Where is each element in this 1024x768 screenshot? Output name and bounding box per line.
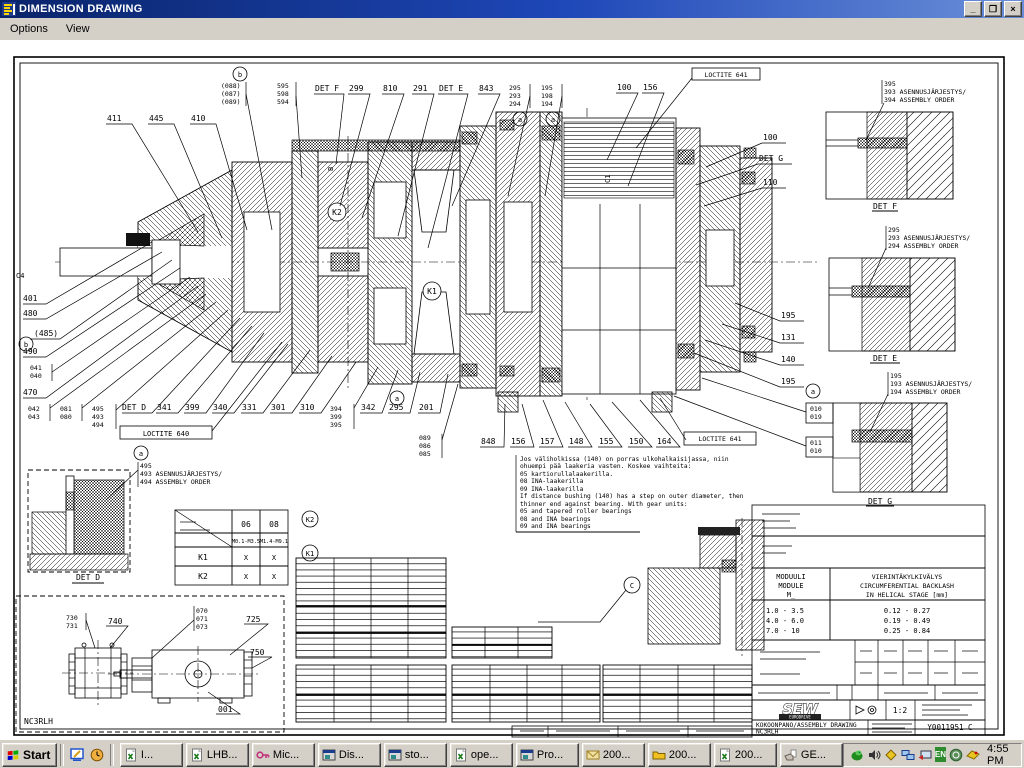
svg-text:157: 157 (540, 437, 555, 446)
svg-text:194 ASSEMBLY ORDER: 194 ASSEMBLY ORDER (890, 388, 961, 396)
svg-text:a: a (518, 116, 522, 124)
window-title: DIMENSION DRAWING (19, 3, 964, 15)
svg-text:201: 201 (419, 403, 434, 412)
svg-text:DET E: DET E (439, 84, 463, 93)
svg-text:198: 198 (541, 92, 553, 100)
svg-text:M_: M_ (787, 591, 796, 599)
svg-text:725: 725 (246, 615, 261, 624)
menu-view[interactable]: View (58, 21, 98, 37)
svg-text:010: 010 (810, 447, 822, 455)
svg-text:040: 040 (30, 372, 42, 380)
svg-text:293: 293 (509, 92, 521, 100)
svg-text:08: 08 (269, 520, 279, 529)
app-icon (2, 2, 16, 16)
svg-text:K1: K1 (306, 550, 314, 558)
svg-text:If distance bushing (140) has: If distance bushing (140) has a step on … (520, 493, 744, 500)
hand-icon (784, 748, 798, 762)
svg-text:291: 291 (413, 84, 428, 93)
svg-text:340: 340 (213, 403, 228, 412)
svg-text:100: 100 (763, 133, 778, 142)
svg-text:08 INA-laakerilla: 08 INA-laakerilla (520, 478, 584, 485)
svg-text:843: 843 (479, 84, 494, 93)
task-button[interactable]: sto... (384, 743, 447, 767)
system-tray: EN 4:55 PM (843, 743, 1022, 767)
svg-text:156: 156 (511, 437, 526, 446)
svg-text:195: 195 (541, 84, 553, 92)
svg-text:05 kartiorullalaakerilla.: 05 kartiorullalaakerilla. (520, 471, 613, 478)
svg-text:08 and INA bearings: 08 and INA bearings (520, 516, 591, 523)
minimize-button[interactable]: _ (964, 1, 982, 17)
menu-bar: Options View (0, 18, 1024, 40)
svg-text:295: 295 (888, 226, 900, 234)
svg-text:a: a (395, 395, 399, 403)
svg-text:393 ASENNUSJÄRJESTYS/: 393 ASENNUSJÄRJESTYS/ (884, 87, 966, 96)
svg-text:MODULE: MODULE (778, 582, 803, 590)
svg-text:495: 495 (140, 462, 152, 470)
svg-text:DET D: DET D (76, 573, 100, 582)
svg-text:495: 495 (92, 405, 104, 413)
remote-icon[interactable] (918, 748, 932, 762)
taskbar-divider (60, 744, 64, 766)
svg-text:C: C (630, 582, 634, 590)
task-button[interactable]: ope... (450, 743, 513, 767)
svg-text:06: 06 (241, 520, 251, 529)
svg-text:1.0 - 3.5: 1.0 - 3.5 (766, 607, 804, 615)
svg-text:7.0 - 10: 7.0 - 10 (766, 627, 800, 635)
svg-text:a: a (139, 450, 143, 458)
svg-text:0.25 - 0.84: 0.25 - 0.84 (884, 627, 930, 635)
svg-text:042: 042 (28, 405, 40, 413)
svg-text:150: 150 (629, 437, 644, 446)
svg-text:(087): (087) (221, 90, 241, 98)
mail-notify-icon[interactable] (966, 748, 980, 762)
excel-icon (190, 748, 204, 762)
svg-text:0.12 - 0.27: 0.12 - 0.27 (884, 607, 930, 615)
svg-text:K2: K2 (198, 572, 208, 581)
variant-code: NC3RLH (24, 717, 53, 726)
svg-text:05 and tapered roller bearings: 05 and tapered roller bearings (520, 508, 632, 515)
svg-text:494: 494 (92, 421, 104, 429)
svg-text:DET F: DET F (315, 84, 339, 93)
svg-text:342: 342 (361, 403, 376, 412)
svg-text:493 ASENNUSJÄRJESTYS/: 493 ASENNUSJÄRJESTYS/ (140, 469, 222, 478)
svg-text:089: 089 (419, 434, 431, 442)
svg-text:740: 740 (108, 617, 123, 626)
svg-text:294 ASSEMBLY ORDER: 294 ASSEMBLY ORDER (888, 242, 959, 250)
excel-icon (454, 748, 468, 762)
svg-text:MODUULI: MODUULI (776, 573, 806, 581)
application-window: K2 K1 C4 B C1 (0, 0, 1024, 768)
task-button[interactable]: 200... (714, 743, 777, 767)
language-indicator[interactable]: EN (935, 747, 946, 762)
svg-text:730: 730 (66, 614, 78, 622)
svg-text:ohuempi pää laakeria vasten. K: ohuempi pää laakeria vasten. Koskee vaih… (520, 463, 691, 470)
svg-text:490: 490 (23, 347, 38, 356)
window-icon (388, 748, 402, 762)
svg-text:DET F: DET F (873, 202, 897, 211)
clock: 4:55 PM (987, 743, 1015, 767)
svg-text:301: 301 (271, 403, 286, 412)
task-button[interactable]: 200... (648, 743, 711, 767)
svg-text:399: 399 (330, 413, 342, 421)
svg-text:043: 043 (28, 413, 40, 421)
svg-text:DET E: DET E (873, 354, 897, 363)
svg-text:VIERINTÄKYLKIVÄLYS: VIERINTÄKYLKIVÄLYS (872, 572, 943, 581)
section-mark-c4: C4 (16, 272, 24, 280)
window-icon (520, 748, 534, 762)
svg-text:395: 395 (884, 80, 896, 88)
svg-text:Jos väliholkissa (140) on porr: Jos väliholkissa (140) on porras ulkohal… (520, 456, 729, 463)
restore-button[interactable]: ❐ (984, 1, 1002, 17)
svg-text:080: 080 (60, 413, 72, 421)
svg-text:a: a (811, 388, 815, 396)
start-button[interactable]: Start (2, 743, 57, 767)
svg-text:110: 110 (763, 178, 778, 187)
scale-value: 1:2 (893, 706, 908, 715)
svg-text:341: 341 (157, 403, 172, 412)
taskbar: Start I... LHB... Mic... Dis... sto... o… (0, 739, 1024, 768)
k1-marker: K1 (427, 287, 437, 296)
svg-text:09 and INA bearings: 09 and INA bearings (520, 523, 591, 530)
section-mark-c1: C1 (604, 175, 612, 183)
svg-text:LOCTITE 641: LOCTITE 641 (698, 435, 741, 443)
svg-text:140: 140 (781, 355, 796, 364)
network-icon[interactable] (901, 748, 915, 762)
task-button[interactable]: I... (120, 743, 183, 767)
drawing-sheet: K2 K1 C4 B C1 (0, 40, 1024, 739)
svg-text:086: 086 (419, 442, 431, 450)
dragon-icon[interactable] (850, 748, 864, 762)
svg-text:011: 011 (810, 439, 822, 447)
svg-text:K1: K1 (198, 553, 208, 562)
svg-text:810: 810 (383, 84, 398, 93)
svg-text:164: 164 (657, 437, 672, 446)
svg-text:041: 041 (30, 364, 42, 372)
svg-text:494 ASSEMBLY ORDER: 494 ASSEMBLY ORDER (140, 478, 211, 486)
svg-text:081: 081 (60, 405, 72, 413)
excel-icon (124, 748, 138, 762)
svg-text:thinner end against bearing. W: thinner end against bearing. With gear u… (520, 501, 688, 508)
svg-text:a: a (551, 116, 555, 124)
taskbar-divider (110, 744, 114, 766)
svg-text:DET G: DET G (759, 154, 783, 163)
svg-text:148: 148 (569, 437, 584, 446)
svg-text:DET D: DET D (122, 403, 146, 412)
svg-text:CIRCUMFERENTIAL BACKLASH: CIRCUMFERENTIAL BACKLASH (860, 582, 954, 590)
task-button[interactable]: Mic... (252, 743, 315, 767)
svg-text:195: 195 (781, 377, 796, 386)
svg-text:195: 195 (890, 372, 902, 380)
svg-text:019: 019 (810, 413, 822, 421)
clock-launch-icon[interactable] (87, 744, 107, 766)
svg-text:598: 598 (277, 90, 289, 98)
svg-text:09 INA-laakerilla: 09 INA-laakerilla (520, 486, 584, 493)
svg-text:085: 085 (419, 450, 431, 458)
svg-text:LOCTITE 641: LOCTITE 641 (704, 71, 747, 79)
k2-marker: K2 (332, 208, 342, 217)
svg-text:750: 750 (250, 648, 265, 657)
title-bar: DIMENSION DRAWING _ ❐ × (0, 0, 1024, 18)
svg-text:470: 470 (23, 388, 38, 397)
svg-text:293 ASENNUSJÄRJESTYS/: 293 ASENNUSJÄRJESTYS/ (888, 233, 970, 242)
svg-text:4.0 - 6.0: 4.0 - 6.0 (766, 617, 804, 625)
svg-text:073: 073 (196, 623, 208, 631)
svg-text:310: 310 (300, 403, 315, 412)
show-desktop-icon[interactable] (67, 744, 87, 766)
svg-text:LOCTITE 640: LOCTITE 640 (143, 430, 189, 438)
sync-icon[interactable] (949, 748, 963, 762)
svg-text:480: 480 (23, 309, 38, 318)
svg-text:294: 294 (509, 100, 521, 108)
svg-text:IN HELICAL STAGE [mm]: IN HELICAL STAGE [mm] (866, 591, 948, 599)
svg-text:395: 395 (330, 421, 342, 429)
svg-text:731: 731 (66, 622, 78, 630)
svg-text:K2: K2 (306, 516, 314, 524)
task-button[interactable]: Dis... (318, 743, 381, 767)
svg-text:071: 071 (196, 615, 208, 623)
svg-text:070: 070 (196, 607, 208, 615)
svg-text:595: 595 (277, 82, 289, 90)
svg-text:331: 331 (242, 403, 257, 412)
svg-text:394: 394 (330, 405, 342, 413)
svg-text:295: 295 (509, 84, 521, 92)
key-icon (256, 748, 270, 762)
svg-text:194: 194 (541, 100, 553, 108)
svg-text:594: 594 (277, 98, 289, 106)
svg-text:b: b (238, 71, 242, 79)
svg-text:156: 156 (643, 83, 658, 92)
svg-text:445: 445 (149, 114, 164, 123)
svg-text:(089): (089) (221, 98, 241, 106)
svg-text:401: 401 (23, 294, 38, 303)
svg-text:299: 299 (349, 84, 364, 93)
svg-text:195: 195 (781, 311, 796, 320)
windows-flag-icon (6, 748, 20, 762)
svg-text:411: 411 (107, 114, 122, 123)
svg-text:848: 848 (481, 437, 496, 446)
svg-text:394 ASSEMBLY ORDER: 394 ASSEMBLY ORDER (884, 96, 955, 104)
mail-icon (586, 748, 600, 762)
svg-text:155: 155 (599, 437, 614, 446)
close-button[interactable]: × (1004, 1, 1022, 17)
section-mark-b: B (327, 167, 335, 171)
task-button[interactable]: LHB... (186, 743, 249, 767)
svg-text:M1.4-M9.1: M1.4-M9.1 (260, 539, 288, 545)
task-button[interactable]: Pro... (516, 743, 579, 767)
folder-icon (652, 748, 666, 762)
task-button[interactable]: GE... (780, 743, 843, 767)
svg-text:0.19 - 0.49: 0.19 - 0.49 (884, 617, 930, 625)
menu-options[interactable]: Options (2, 21, 56, 37)
sew-logo-sub: EURODRIVE (789, 715, 811, 720)
svg-text:493: 493 (92, 413, 104, 421)
task-button[interactable]: 200... (582, 743, 645, 767)
drawing-number: Y0011951 C (927, 723, 972, 732)
svg-text:(088): (088) (221, 82, 241, 90)
svg-text:010: 010 (810, 405, 822, 413)
window-icon (322, 748, 336, 762)
svg-text:(485): (485) (34, 329, 58, 338)
svg-text:295: 295 (389, 403, 404, 412)
diamond-icon[interactable] (884, 748, 898, 762)
svg-text:410: 410 (191, 114, 206, 123)
svg-text:131: 131 (781, 333, 796, 342)
excel-icon (718, 748, 732, 762)
svg-text:100: 100 (617, 83, 632, 92)
volume-icon[interactable] (867, 748, 881, 762)
svg-text:399: 399 (185, 403, 200, 412)
svg-text:M0.1-M3.5: M0.1-M3.5 (232, 539, 260, 545)
doc-code: NC3RLH (756, 729, 779, 736)
svg-text:001: 001 (218, 705, 233, 714)
svg-text:193 ASENNUSJÄRJESTYS/: 193 ASENNUSJÄRJESTYS/ (890, 379, 972, 388)
